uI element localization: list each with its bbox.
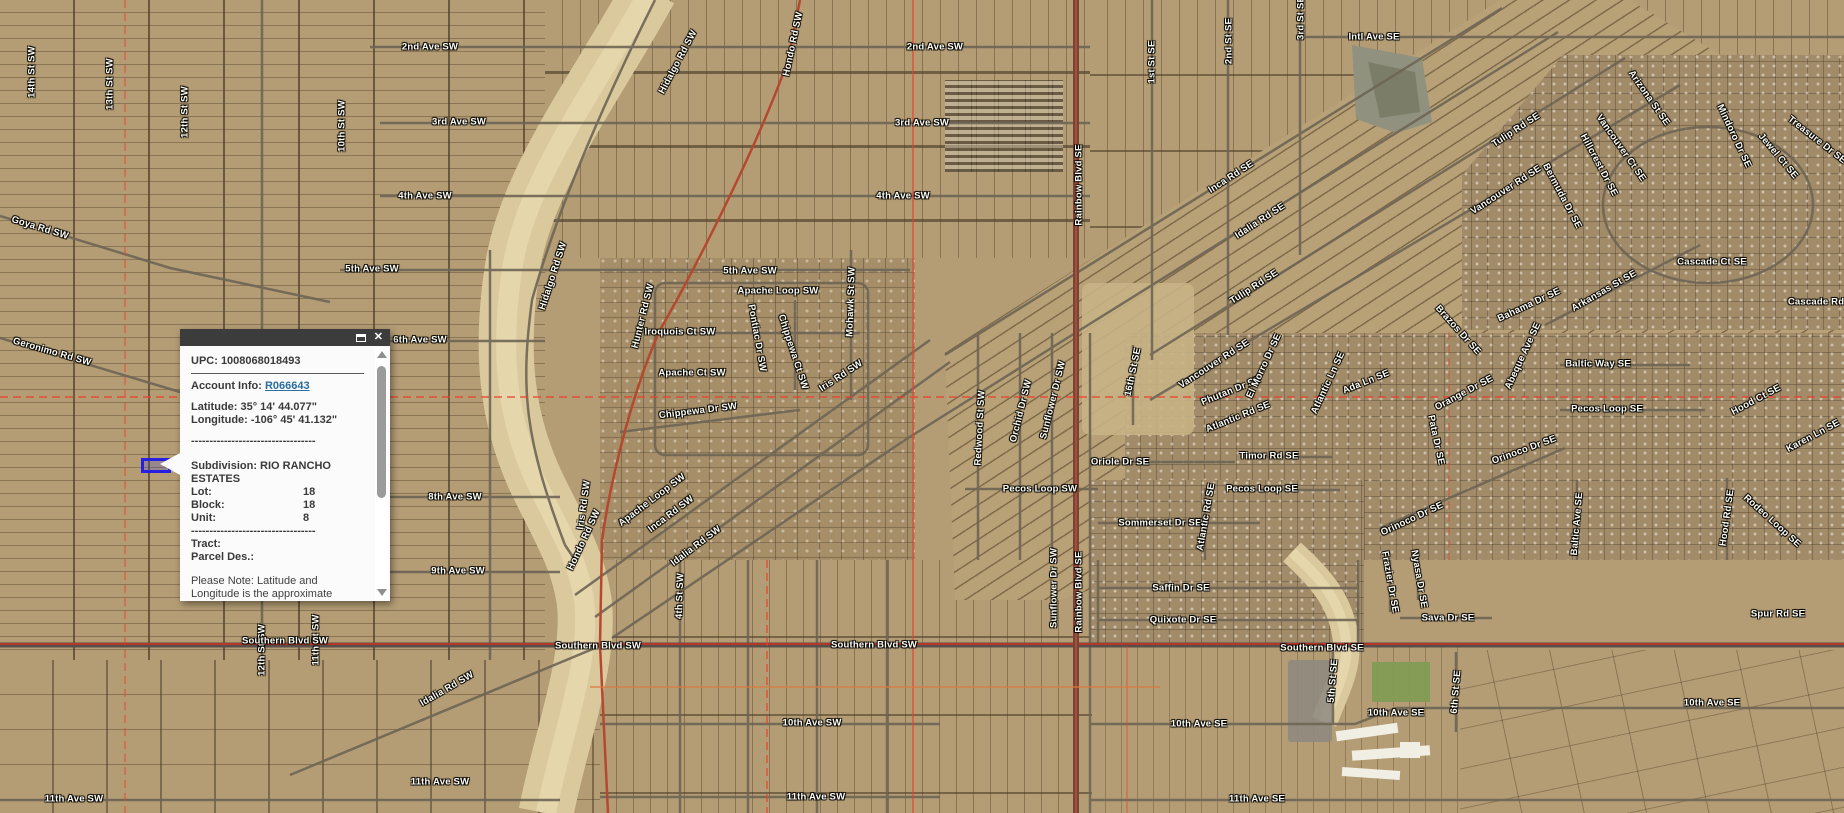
account-label: Account Info: [191, 380, 265, 392]
parcel-info-popup: ✕ UPC: 1008068018493 Account Info: R0666… [180, 329, 390, 601]
block-label: Block: [191, 499, 303, 512]
block-value: 18 [303, 499, 315, 512]
unit-label: Unit: [191, 512, 303, 525]
longitude-value: Longitude: -106° 45' 41.132" [191, 414, 364, 427]
popup-body: UPC: 1008068018493 Account Info: R066643… [180, 346, 390, 601]
unit-row: Unit:8 [191, 512, 364, 525]
latitude-value: Latitude: 35° 14' 44.077" [191, 401, 364, 414]
popup-callout-arrow [160, 453, 180, 475]
divider-line [191, 373, 364, 374]
popup-scrollbar[interactable] [375, 348, 388, 599]
account-link[interactable]: R066643 [265, 380, 310, 392]
subdivision-value: Subdivision: RIO RANCHO ESTATES [191, 460, 364, 486]
popup-titlebar[interactable]: ✕ [180, 329, 390, 346]
block-row: Block:18 [191, 499, 364, 512]
parcel-des-label: Parcel Des.: [191, 551, 364, 564]
lot-row: Lot:18 [191, 486, 364, 499]
parking-lot [1288, 660, 1332, 742]
school-buildings [1336, 723, 1431, 780]
maximize-icon[interactable] [356, 334, 366, 342]
dashed-separator: ---------------------------------- [191, 435, 364, 448]
unit-value: 8 [303, 512, 309, 525]
popup-note: Please Note: Latitude and Longitude is t… [191, 575, 355, 601]
account-info-row: Account Info: R066643 [191, 380, 364, 393]
scroll-up-icon[interactable] [377, 351, 387, 358]
scroll-down-icon[interactable] [377, 589, 387, 596]
tract-label: Tract: [191, 538, 364, 551]
close-icon[interactable]: ✕ [374, 332, 383, 343]
lot-value: 18 [303, 486, 315, 499]
lot-label: Lot: [191, 486, 303, 499]
vacant-parcel [1082, 283, 1194, 435]
scroll-thumb[interactable] [377, 366, 386, 498]
upc-value: UPC: 1008068018493 [191, 355, 364, 368]
sports-field [1372, 662, 1430, 702]
dashed-separator: ---------------------------------- [191, 525, 364, 538]
